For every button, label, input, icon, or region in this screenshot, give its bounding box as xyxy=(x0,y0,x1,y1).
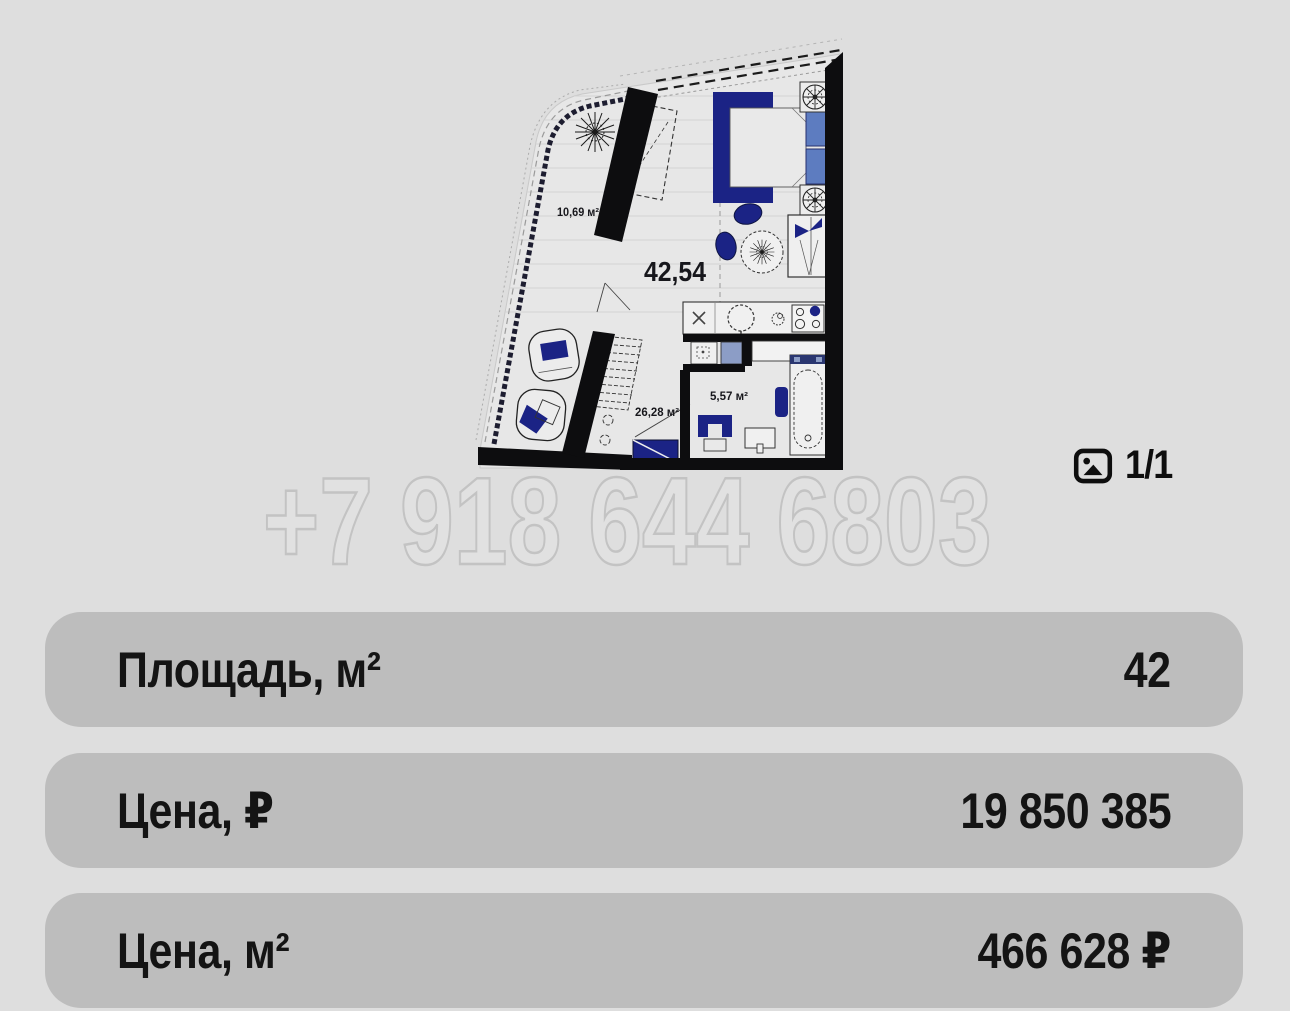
area-label: Площадь, м² xyxy=(117,641,381,699)
price-per-m2-label: Цена, м² xyxy=(117,922,289,980)
gallery-counter: 1/1 xyxy=(1072,443,1178,488)
wardrobe xyxy=(788,215,827,277)
plan-room-area: 26,28 м² xyxy=(635,407,679,419)
price-per-m2-value: 466 628 ₽ xyxy=(978,922,1171,980)
plan-balcony-area: 10,69 м² xyxy=(557,207,599,219)
floor-plan-image[interactable]: 42,54 10,69 м² 26,28 м² 5,57 м² xyxy=(470,30,850,470)
price-value: 19 850 385 xyxy=(960,782,1171,840)
price-label: Цена, ₽ xyxy=(117,782,274,840)
balcony-armchair-1 xyxy=(526,327,581,384)
plan-total-area: 42,54 xyxy=(644,256,706,287)
phone-watermark: +7 918 644 6803 xyxy=(136,462,1119,582)
plant-icon xyxy=(575,112,615,152)
area-value: 42 xyxy=(1124,641,1171,699)
gallery-counter-label: 1/1 xyxy=(1125,443,1172,488)
info-row-area: Площадь, м² 42 xyxy=(45,612,1243,727)
plan-bathroom-area: 5,57 м² xyxy=(710,391,748,403)
floor-plan-svg: 42,54 10,69 м² 26,28 м² 5,57 м² xyxy=(470,30,850,470)
listing-page: { "page": { "background": "#dedede", "ca… xyxy=(0,0,1290,1011)
info-row-price: Цена, ₽ 19 850 385 xyxy=(45,753,1243,868)
info-row-price-per-m2: Цена, м² 466 628 ₽ xyxy=(45,893,1243,1008)
balcony-armchair-2 xyxy=(515,388,567,442)
image-icon xyxy=(1072,445,1114,487)
kitchen-counter xyxy=(683,302,828,336)
